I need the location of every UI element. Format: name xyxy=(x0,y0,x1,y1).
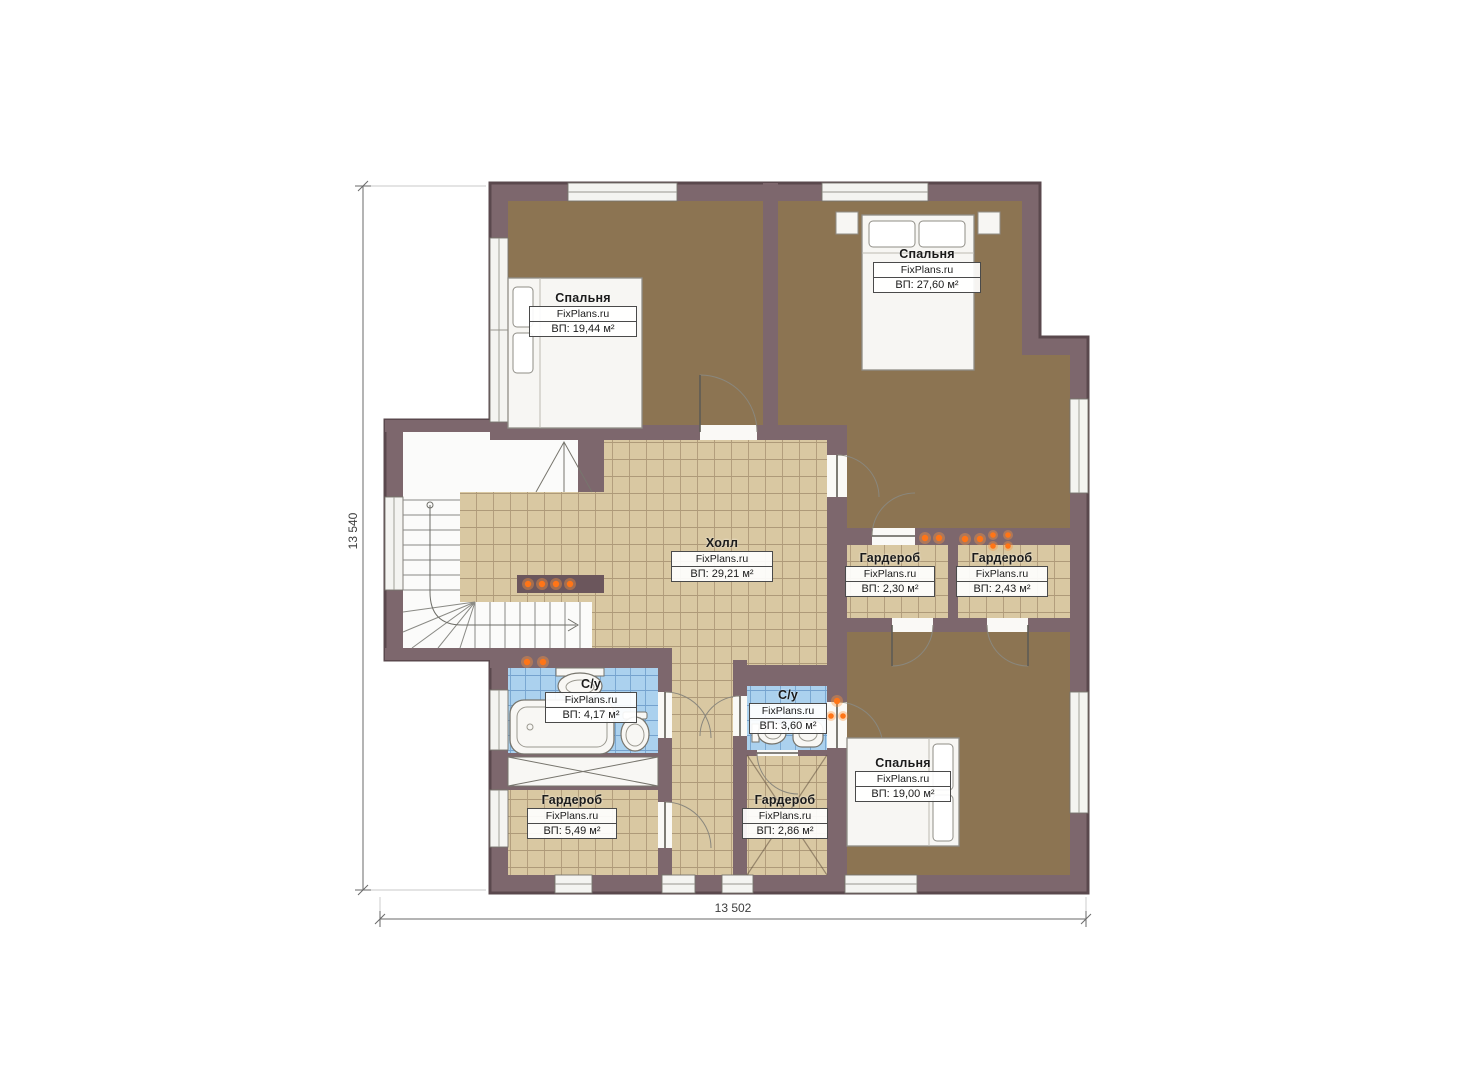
corridor-floor xyxy=(672,660,733,875)
watermark-text: FixPlans.ru xyxy=(957,567,1047,582)
floor-plan-page: Спальня FixPlans.ru ВП: 19,44 м² Спальня… xyxy=(0,0,1474,1080)
room-name: С/у xyxy=(749,688,827,702)
room-label-bedroom-bottom-right: Спальня FixPlans.ru ВП: 19,00 м² xyxy=(855,756,951,802)
window-right-2 xyxy=(1070,692,1088,813)
watermark-text: FixPlans.ru xyxy=(874,263,980,278)
watermark-text: FixPlans.ru xyxy=(672,552,772,567)
room-name: Гардероб xyxy=(527,793,617,807)
room-area: ВП: 2,30 м² xyxy=(846,582,934,596)
watermark-text: FixPlans.ru xyxy=(528,809,616,824)
room-label-wardrobe-4: Гардероб FixPlans.ru ВП: 2,86 м² xyxy=(742,793,828,839)
dimension-text-bottom: 13 502 xyxy=(698,901,768,915)
room-label-wardrobe-2: Гардероб FixPlans.ru ВП: 2,43 м² xyxy=(956,551,1048,597)
window-stair-annex xyxy=(385,497,403,590)
room-name: Гардероб xyxy=(956,551,1048,565)
room-label-hall: Холл FixPlans.ru ВП: 29,21 м² xyxy=(671,536,773,582)
room-name: Холл xyxy=(671,536,773,550)
window-bottom-4 xyxy=(845,875,917,893)
room-area: ВП: 4,17 м² xyxy=(546,708,636,722)
room-area: ВП: 3,60 м² xyxy=(750,719,826,733)
watermark-text: FixPlans.ru xyxy=(856,772,950,787)
room-label-bathroom-1: С/у FixPlans.ru ВП: 4,17 м² xyxy=(545,677,637,723)
room-area: ВП: 19,00 м² xyxy=(856,787,950,801)
room-name: Гардероб xyxy=(845,551,935,565)
watermark-text: FixPlans.ru xyxy=(846,567,934,582)
room-area: ВП: 5,49 м² xyxy=(528,824,616,838)
room-label-bedroom-top-left: Спальня FixPlans.ru ВП: 19,44 м² xyxy=(529,291,637,337)
room-label-bedroom-top-right: Спальня FixPlans.ru ВП: 27,60 м² xyxy=(873,247,981,293)
built-in-closet xyxy=(508,757,658,786)
nightstand xyxy=(836,212,858,234)
room-label-wardrobe-1: Гардероб FixPlans.ru ВП: 2,30 м² xyxy=(845,551,935,597)
room-label-wardrobe-3: Гардероб FixPlans.ru ВП: 5,49 м² xyxy=(527,793,617,839)
nightstand xyxy=(978,212,1000,234)
window-left-2 xyxy=(490,690,508,750)
window-top-1 xyxy=(568,183,677,201)
room-area: ВП: 2,86 м² xyxy=(743,824,827,838)
window-bottom-3 xyxy=(722,875,753,893)
room-area: ВП: 19,44 м² xyxy=(530,322,636,336)
room-name: Спальня xyxy=(873,247,981,261)
room-name: Гардероб xyxy=(742,793,828,807)
room-area: ВП: 27,60 м² xyxy=(874,278,980,292)
room-name: С/у xyxy=(545,677,637,691)
window-right-1 xyxy=(1070,399,1088,493)
watermark-text: FixPlans.ru xyxy=(743,809,827,824)
room-label-bathroom-2: С/у FixPlans.ru ВП: 3,60 м² xyxy=(749,688,827,734)
watermark-text: FixPlans.ru xyxy=(530,307,636,322)
watermark-text: FixPlans.ru xyxy=(750,704,826,719)
room-area: ВП: 29,21 м² xyxy=(672,567,772,581)
dimension-text-left: 13 540 xyxy=(346,496,360,566)
watermark-text: FixPlans.ru xyxy=(546,693,636,708)
window-top-2 xyxy=(822,183,928,201)
window-bottom-2 xyxy=(662,875,695,893)
room-name: Спальня xyxy=(855,756,951,770)
room-name: Спальня xyxy=(529,291,637,305)
room-area: ВП: 2,43 м² xyxy=(957,582,1047,596)
window-left-3 xyxy=(490,790,508,847)
window-bottom-1 xyxy=(555,875,592,893)
window-left-1 xyxy=(490,238,508,422)
